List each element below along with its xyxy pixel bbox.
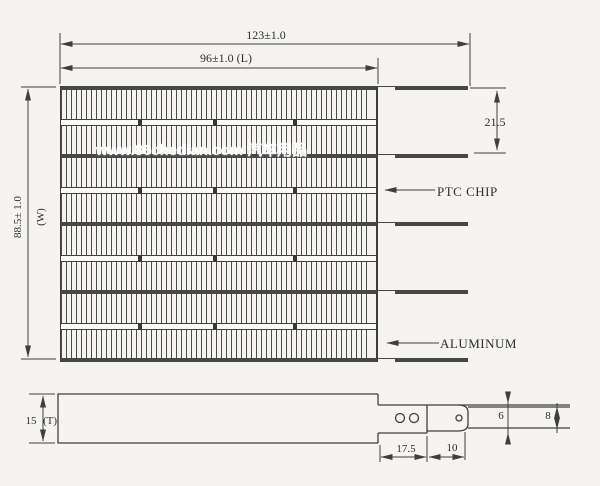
- dim-tube-stickout: 17.5: [386, 443, 426, 455]
- dim-tab-pitch: 21.5: [474, 116, 516, 129]
- fin-row: [61, 262, 376, 291]
- fin-row: [61, 90, 376, 119]
- ptc-chip-row: [61, 187, 376, 194]
- dim-thickness-suffix: (T): [38, 415, 62, 427]
- fin-row: [61, 294, 376, 323]
- ptc-chip-separator: [293, 255, 297, 262]
- ptc-chip-separator: [213, 187, 217, 194]
- fin-row: [61, 194, 376, 223]
- dim-tube-height: 8: [538, 410, 558, 422]
- crimp-hole: [410, 414, 419, 423]
- ptc-chip-separator: [138, 255, 142, 262]
- watermark-text: www.86chedian.com 汽车用品: [96, 139, 306, 160]
- electrode-tab: [395, 154, 468, 158]
- electrode-tab: [395, 222, 468, 226]
- ptc-chip-separator: [293, 187, 297, 194]
- dim-overall-length: 123±1.0: [216, 29, 316, 42]
- aluminum-tube-row: [61, 86, 376, 90]
- dim-heater-length: 96±1.0 (L): [176, 52, 276, 65]
- crimp-hole: [396, 414, 405, 423]
- fin-row: [61, 226, 376, 255]
- heater-grid: [60, 86, 378, 362]
- dim-width-suffix: (W): [35, 192, 47, 242]
- electrode-tab: [395, 86, 468, 90]
- dimension-lines-side: [29, 392, 557, 462]
- aluminum-tube-row: [61, 290, 376, 294]
- ptc-chip-row: [61, 323, 376, 330]
- ptc-heater-drawing: www.86chedian.com 汽车用品 123±1.0 96±1.0 (L…: [0, 0, 600, 486]
- ptc-chip-row: [61, 255, 376, 262]
- ptc-chip-separator: [293, 323, 297, 330]
- electrode-tab: [395, 358, 468, 362]
- label-ptc-chip: PTC CHIP: [437, 185, 498, 199]
- ptc-chip-row: [61, 119, 376, 126]
- ptc-chip-separator: [213, 323, 217, 330]
- ptc-chip-separator: [293, 119, 297, 126]
- electrode-tab: [395, 290, 468, 294]
- dim-terminal-height: 6: [491, 410, 511, 422]
- fin-row: [61, 330, 376, 359]
- aluminum-tube-row: [61, 358, 376, 362]
- ptc-chip-separator: [138, 323, 142, 330]
- ptc-chip-separator: [213, 255, 217, 262]
- ptc-chip-separator: [213, 119, 217, 126]
- terminal-hole: [456, 415, 462, 421]
- ptc-chip-separator: [138, 187, 142, 194]
- dim-width: 88.5± 1.0: [12, 167, 24, 267]
- ptc-chip-separator: [138, 119, 142, 126]
- aluminum-tube-row: [61, 222, 376, 226]
- dim-insulator-length: 10: [432, 442, 472, 454]
- label-aluminum: ALUMINUM: [440, 337, 517, 351]
- fin-row: [61, 158, 376, 187]
